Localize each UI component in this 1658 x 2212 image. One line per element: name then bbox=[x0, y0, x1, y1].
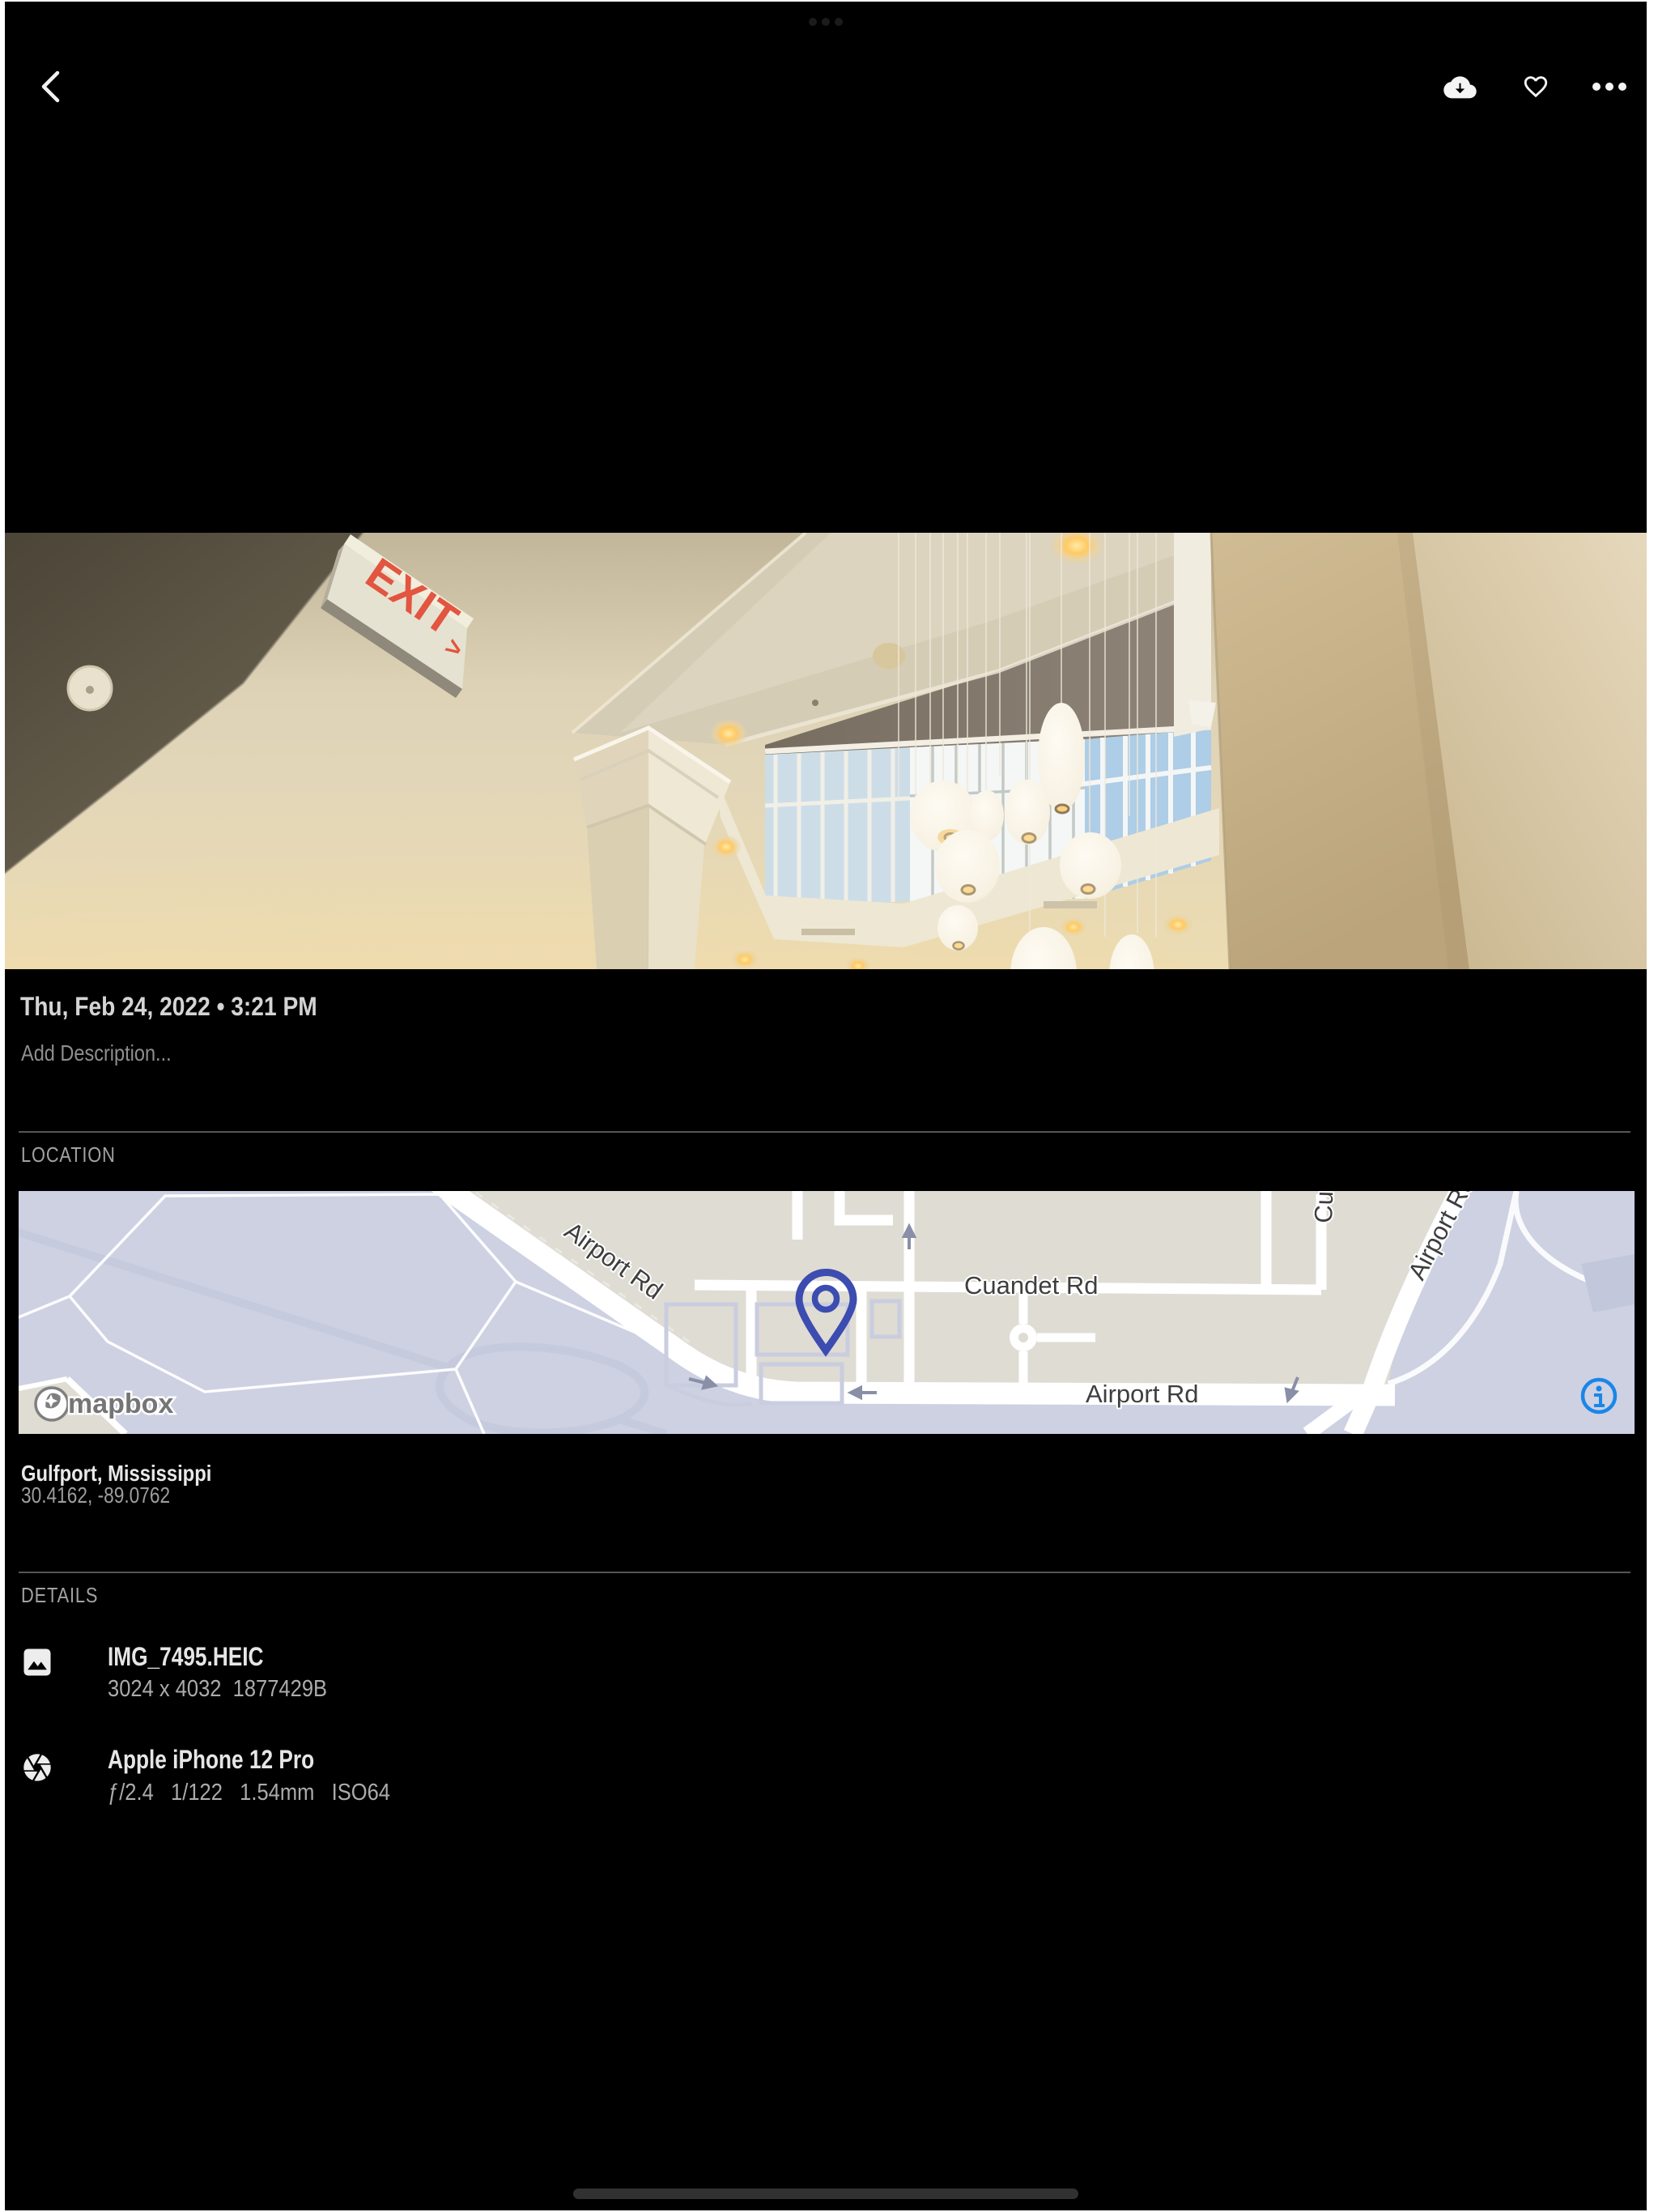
svg-text:Airport Rd: Airport Rd bbox=[1086, 1380, 1199, 1408]
svg-text:Cuandet Rd: Cuandet Rd bbox=[964, 1271, 1098, 1300]
svg-text:Cu: Cu bbox=[1309, 1191, 1338, 1223]
svg-text:mapbox: mapbox bbox=[68, 1389, 173, 1419]
